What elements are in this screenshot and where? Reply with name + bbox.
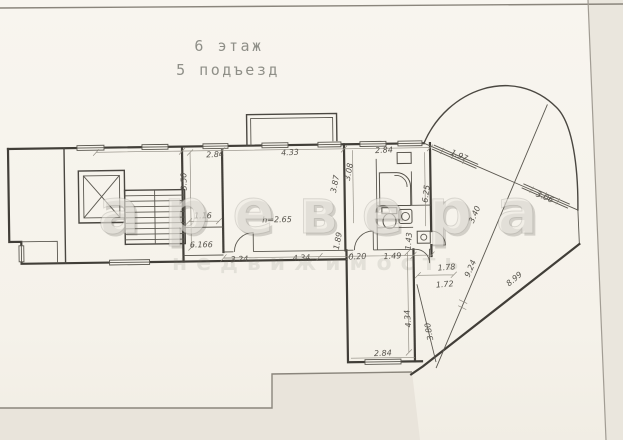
dim-top-left-bay: 2.84 [206, 150, 224, 160]
window-band [365, 358, 401, 365]
dim-top-right-bay: 2.84 [375, 145, 393, 155]
window-band [110, 259, 150, 266]
dim-room-depth: 4.34 [403, 309, 414, 328]
watermark-subtext: недвижимость [172, 251, 467, 276]
title-floor: 6 этаж [194, 37, 263, 55]
title-entrance: 5 подъезд [176, 61, 280, 79]
window-band [318, 141, 341, 148]
watermark-text: аревера [98, 175, 562, 248]
dim-terrace-gap-lower: 1.72 [435, 279, 454, 289]
window-band [142, 144, 168, 151]
floor-plan-drawing: 2.84 4.33 2.84 3.50 1.16 3.87 3.08 1.89 … [0, 0, 623, 440]
window-band [77, 144, 104, 151]
window-band [18, 246, 25, 262]
dim-room-width: 2.84 [374, 349, 392, 359]
dim-top-living: 4.33 [281, 148, 299, 158]
scanned-floor-plan-photo: 2.84 4.33 2.84 3.50 1.16 3.87 3.08 1.89 … [0, 0, 623, 440]
window-band [398, 140, 422, 147]
